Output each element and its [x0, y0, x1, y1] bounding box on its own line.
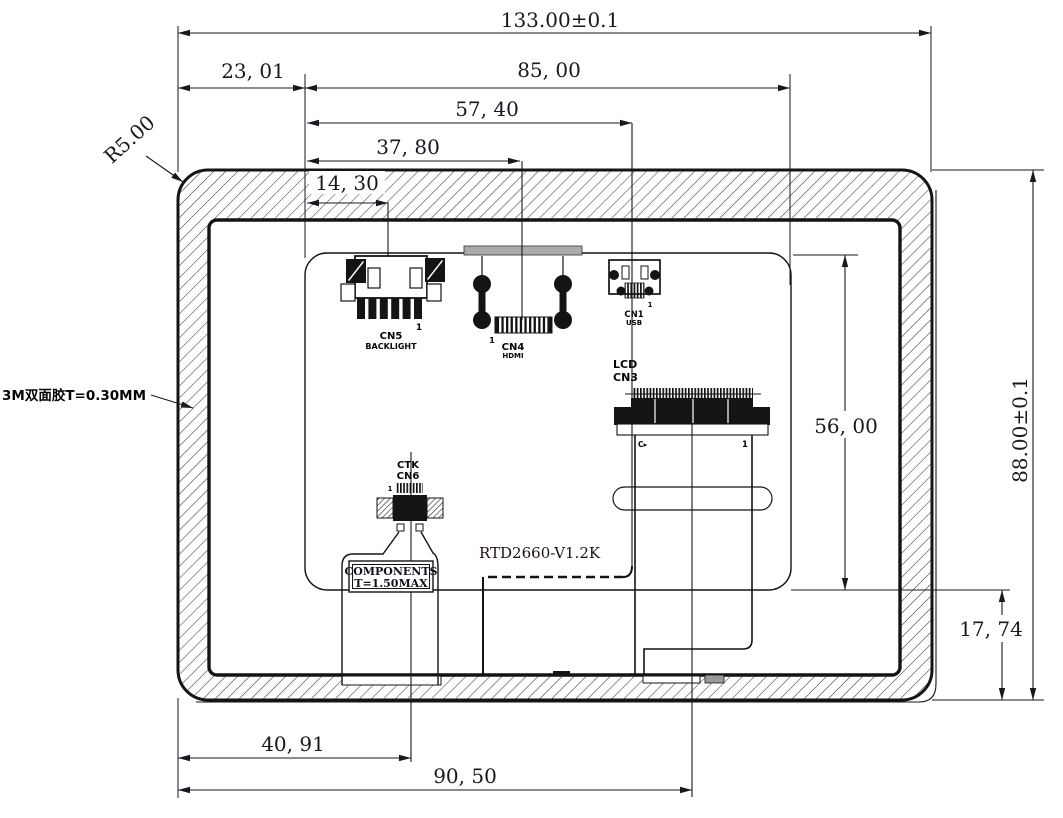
components-note-line2: T=1.50MAX: [354, 577, 428, 590]
dim-hdmi-center: 37, 80: [376, 135, 440, 159]
dim-usb-center: 57, 40: [455, 97, 519, 121]
bottom-slot-gray: [705, 675, 724, 683]
cn3-body: [631, 398, 753, 424]
cn6-pad-left: [377, 498, 393, 518]
cn4-zebra-cap-left: [495, 317, 499, 333]
cn3-ear-left: [614, 407, 631, 425]
cn5-pin1-mark: 1: [416, 323, 422, 333]
lcd-module-dimension-drawing: 1 CN5 BACKLIGHT 1 CN4 HDMI 1 CN1 USB: [0, 0, 1063, 818]
cn1-pad: [609, 270, 619, 280]
cn5-type: BACKLIGHT: [365, 342, 417, 351]
cn3-mark-right: 1: [742, 440, 748, 450]
cn4-zebra-cap-right: [549, 317, 553, 333]
bottom-edge-tab: [553, 671, 570, 676]
dim-left-edge-to-pcb: 23, 01: [221, 59, 285, 83]
cn6-pad-right: [427, 498, 443, 518]
cn6-foot: [416, 524, 423, 531]
cn3-label-line2: CN3: [613, 371, 638, 384]
cn3-mark-left: C▸: [638, 440, 648, 449]
cn5-wing-right: [427, 284, 441, 301]
dim-pcb-to-bottom: 17, 74: [959, 617, 1023, 641]
cn6-pin1-mark: 1: [388, 485, 393, 493]
cn4-type: HDMI: [502, 352, 523, 360]
cn3-ear-right: [753, 407, 770, 425]
cn6-pin-comb: [396, 483, 423, 493]
cn6-foot: [397, 524, 404, 531]
cn1-pad: [617, 287, 626, 296]
cn1-pin-slot: [622, 266, 629, 279]
dim-pcb-width: 85, 00: [517, 58, 581, 82]
dim-pcb-height: 56, 00: [814, 414, 878, 438]
cn5-slot-right: [410, 268, 422, 288]
cn1-pin1-mark: 1: [648, 301, 653, 309]
cn1-pad: [650, 270, 660, 280]
cn1-pad: [645, 287, 654, 296]
cn5-name: CN5: [380, 331, 403, 342]
cn1-pin-slot: [641, 266, 648, 279]
cn6-label-line1: CTK: [397, 460, 420, 471]
cn4-fpc-zebra: [495, 317, 552, 333]
dim-backlight-center: 14, 30: [315, 171, 379, 195]
technical-drawing-page: 1 CN5 BACKLIGHT 1 CN4 HDMI 1 CN1 USB: [0, 0, 1063, 818]
adhesive-note: 3M双面胶T=0.30MM: [2, 387, 146, 404]
dim-overall-height: 88.00±0.1: [1008, 377, 1032, 483]
cn6-label-line2: CN6: [397, 471, 420, 482]
leader-annotations: R5.00 3M双面胶T=0.30MM: [2, 110, 193, 408]
dim-lcd-center: 90, 50: [433, 764, 497, 788]
cn1-fpc-zebra: [625, 283, 644, 298]
dim-ctk-center: 40, 91: [261, 732, 325, 756]
cn1-type: USB: [626, 319, 642, 327]
cn6-body: [393, 495, 427, 521]
cn5-wing-left: [341, 284, 355, 301]
cn3-label-line1: LCD: [613, 358, 637, 371]
ctk-fpc-notch: [342, 676, 441, 685]
board-model-text: RTD2660-V1.2K: [479, 544, 601, 562]
dim-overall-width: 133.00±0.1: [501, 8, 620, 32]
cn4-pin1-mark: 1: [489, 336, 495, 345]
hdmi-port-hidden-bar: [464, 246, 582, 255]
cn5-slot-left: [368, 268, 380, 288]
corner-radius-leader: [146, 156, 183, 182]
